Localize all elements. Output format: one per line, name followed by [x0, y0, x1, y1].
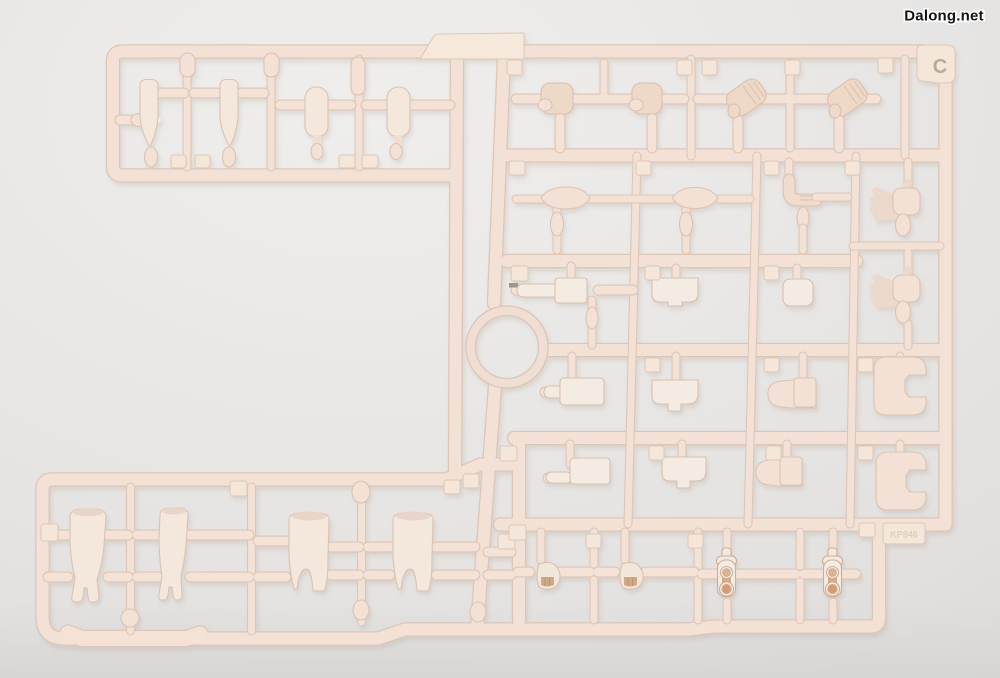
- svg-text:C: C: [933, 56, 947, 78]
- svg-text:KP846: KP846: [890, 530, 918, 540]
- svg-text:Dalong.net: Dalong.net: [904, 8, 984, 25]
